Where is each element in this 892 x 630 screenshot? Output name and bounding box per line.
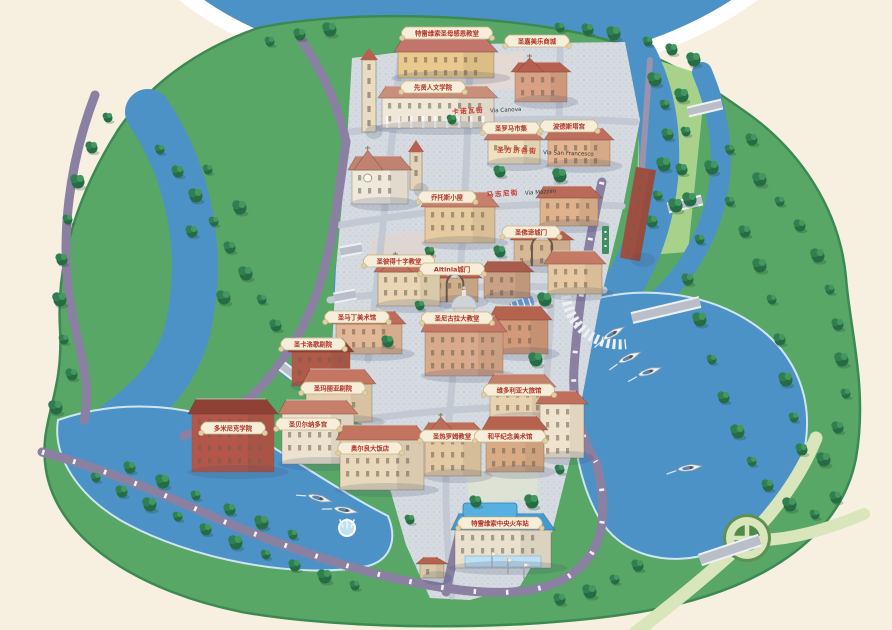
landmark-label: 和平纪念美术馆 [488,431,533,440]
landmark-label: 特雷维索圣母感恩教堂 [415,28,480,37]
street-label-zh: 卡诺瓦街 [452,105,484,116]
landmark-banner: 先贤人文学院 [399,81,468,95]
landmark-banner: 圣佛谛城门 [500,226,562,240]
landmark-label: 先贤人文学院 [414,82,453,91]
landmark-banner: 圣贝尔纳多宫 [274,418,343,432]
landmark-banner: 圣玛丽亚剧院 [299,382,368,396]
landmark-label: 圣彼得十字教堂 [376,256,422,265]
landmark-banner: 圣尼古拉大教堂 [419,312,494,326]
landmark-banner: 维多利亚大旅馆 [481,384,556,398]
landmark-label: 维多利亚大旅馆 [497,385,542,394]
landmark-label: 圣贝尔纳多宫 [288,419,328,428]
landmark-banner: 特雷维索圣母感恩教堂 [399,27,494,41]
station-building [451,503,555,568]
landmark-label: 圣马丁美术馆 [337,312,377,321]
landmark-banner: 多米尼克学院 [199,422,268,436]
landmark-label: 波德斯塔宫 [553,121,586,130]
landmark-label: 奥尔良大饭店 [351,443,390,452]
landmark-banner: 奥尔良大饭店 [336,442,405,456]
landmark-banner: 圣卡洛歌剧院 [279,338,348,352]
landmark-label: Altinia城门 [434,264,470,273]
landmark-label: 圣热罗姆教堂 [432,431,472,440]
landmark-banner: 圣罗马市集 [480,122,542,136]
palace-building [482,416,548,472]
landmark-label: 多米尼克学院 [214,423,253,432]
bridge [334,294,356,298]
landmark-banner: 圣嘉美乐商城 [503,35,572,49]
landmark-label: 圣嘉美乐商城 [517,36,557,45]
landmark-label: 圣尼古拉大教堂 [434,313,480,322]
bridge [340,248,362,252]
landmark-banner: 特雷维索中央火车站 [456,517,545,531]
landmark-banner: 和平纪念美术馆 [472,430,547,444]
landmark-banner: 波德斯塔宫 [538,120,600,134]
landmark-banner: 圣马丁美术馆 [323,311,392,325]
tower-building [360,48,378,132]
landmark-banner: 乔托斯小屋 [416,191,478,205]
landmark-label: 特雷维索中央火车站 [471,518,529,527]
landmark-banner: Altinia城门 [418,263,487,277]
signpost-icon [602,226,609,254]
town-map-illustration: 卡诺瓦街Via Canova圣方济各街Via San Francesco马志尼街… [0,0,892,630]
landmark-label: 圣佛谛城门 [514,227,547,236]
landmark-label: 乔托斯小屋 [430,192,464,201]
landmark-label: 圣卡洛歌剧院 [293,339,333,348]
landmark-label: 圣罗马市集 [494,123,528,132]
street-label-zh: 圣方济各街 [496,145,537,155]
landmark-label: 圣玛丽亚剧院 [313,383,353,392]
fountain-icon [339,519,355,536]
palace-building [336,425,428,490]
map-canvas: 卡诺瓦街Via Canova圣方济各街Via San Francesco马志尼街… [0,0,892,630]
